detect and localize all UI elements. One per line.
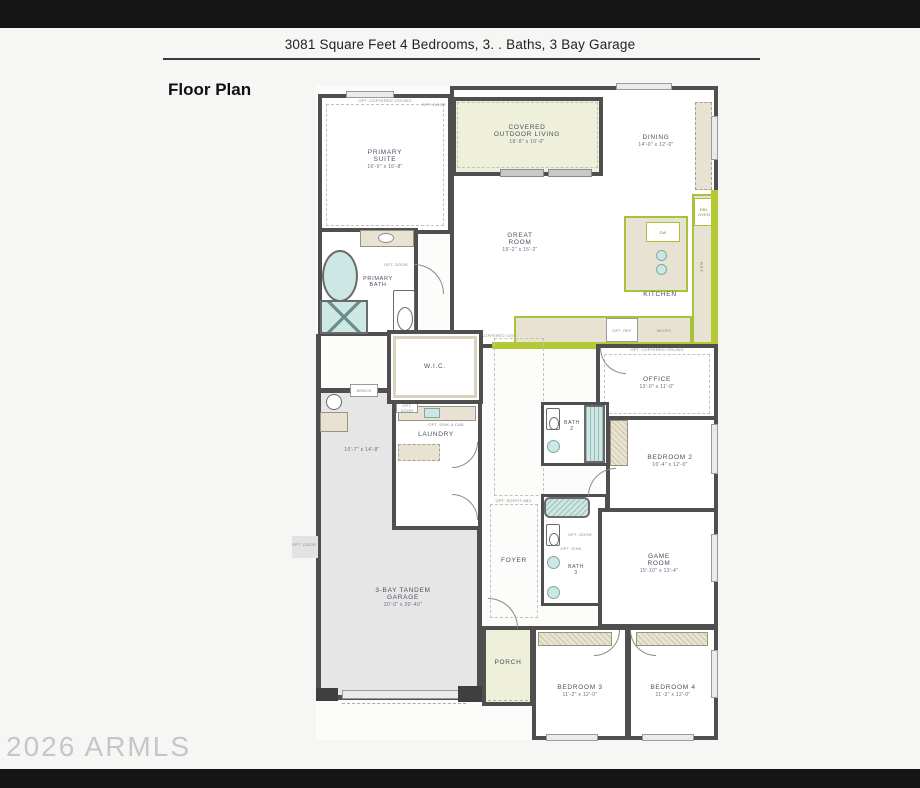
dining-buffet-cabinet (695, 102, 712, 190)
porch-edge-dashed (488, 700, 528, 701)
primary-tub (322, 250, 358, 302)
bath3-sink (547, 556, 560, 569)
toilet-bowl (549, 533, 559, 546)
primary-toilet-room (393, 290, 415, 332)
island-sink (656, 264, 667, 275)
toilet-bowl (397, 307, 413, 331)
exterior-wall-segment (316, 334, 321, 392)
refrigerator-label: REF (699, 262, 704, 302)
bottom-black-bar (0, 769, 920, 788)
wall-post (458, 686, 484, 702)
window (616, 83, 672, 90)
dishwasher-box: DW (646, 222, 680, 242)
floor-plan-page: 3081 Square Feet 4 Bedrooms, 3. . Baths,… (0, 0, 920, 788)
foyer-soffit-label: OPT. SOFFIT ABV. (486, 498, 542, 503)
wall-post (316, 688, 338, 701)
primary-shower (320, 300, 368, 334)
window (346, 91, 394, 98)
hall-cabinet (320, 412, 348, 432)
garage-door-opening (342, 690, 466, 699)
window (546, 734, 598, 741)
top-black-bar (0, 0, 920, 28)
primary-opt-door-label: OPT. DOOR (382, 262, 410, 267)
laundry-opt-cabinet (398, 444, 440, 461)
toilet-bowl (549, 417, 559, 430)
header-divider (163, 58, 760, 60)
bath2-toilet (546, 408, 560, 430)
window (642, 734, 694, 741)
opt-door-outdoor-label: OPT. DOOR (420, 102, 448, 107)
bedroom2-closet (610, 420, 628, 466)
primary-suite-coffered-outline (326, 104, 444, 226)
opt-ref-box: OPT. REF (606, 318, 638, 342)
listing-summary: 3081 Square Feet 4 Bedrooms, 3. . Baths,… (160, 37, 760, 52)
bath3-tub (544, 497, 590, 518)
vanity-sink (378, 233, 394, 243)
page-title: Floor Plan (168, 80, 251, 100)
window (711, 650, 718, 698)
laundry-sink (424, 408, 440, 418)
bath3-sink (547, 586, 560, 599)
opt-door-garage-mark (292, 536, 318, 558)
window (711, 116, 718, 160)
armls-watermark: 2026 ARMLS (6, 731, 191, 763)
bath2-sink (547, 440, 560, 453)
bath3-opt-door-label: OPT. DOOR (566, 532, 594, 537)
island-sink (656, 250, 667, 261)
room-game-room (598, 508, 718, 628)
bench-box: BENCH (350, 384, 378, 397)
gallery-hall-outline (494, 338, 544, 496)
bath2-shower (584, 405, 605, 463)
bath3-opt-sink-label: OPT. SINK (556, 546, 586, 551)
wic-shelving-band (393, 336, 477, 398)
pedestal-sink (326, 394, 342, 410)
laundry-opt-sink-cab: OPT. SINK & CAB (418, 422, 474, 427)
bath3-toilet (546, 524, 560, 546)
green-accent-wall-right (711, 190, 718, 349)
outdoor-dashed-outline (457, 102, 598, 168)
sliding-door-panel (500, 169, 544, 177)
window (711, 424, 718, 474)
sliding-door-panel (548, 169, 592, 177)
micro-label: MICRO (644, 328, 684, 333)
room-porch (482, 626, 534, 706)
window (711, 534, 718, 582)
opt-door-garage-label: OPT. DOOR (290, 542, 318, 547)
garage-door-dashed (342, 703, 466, 704)
